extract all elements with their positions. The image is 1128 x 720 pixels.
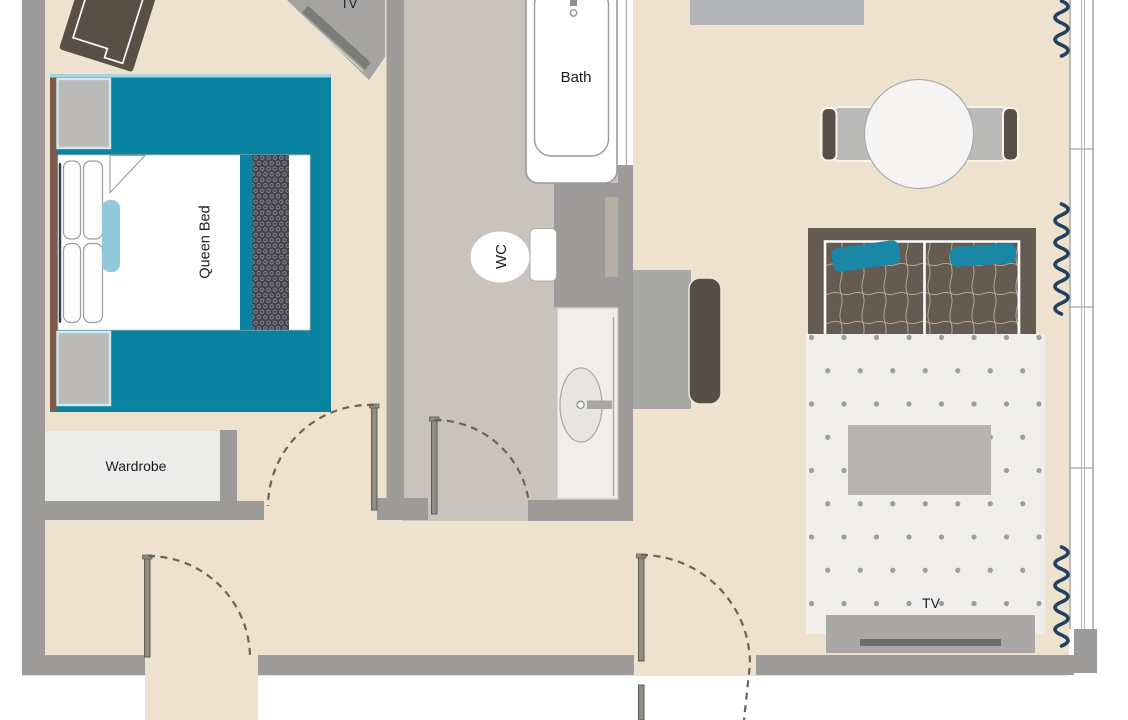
svg-text:Wardrobe: Wardrobe <box>106 458 167 474</box>
svg-text:TV: TV <box>341 0 358 11</box>
svg-text:Bath: Bath <box>561 69 592 86</box>
svg-text:TV: TV <box>922 595 941 611</box>
svg-text:Queen Bed: Queen Bed <box>198 205 214 278</box>
svg-text:WC: WC <box>493 244 510 269</box>
